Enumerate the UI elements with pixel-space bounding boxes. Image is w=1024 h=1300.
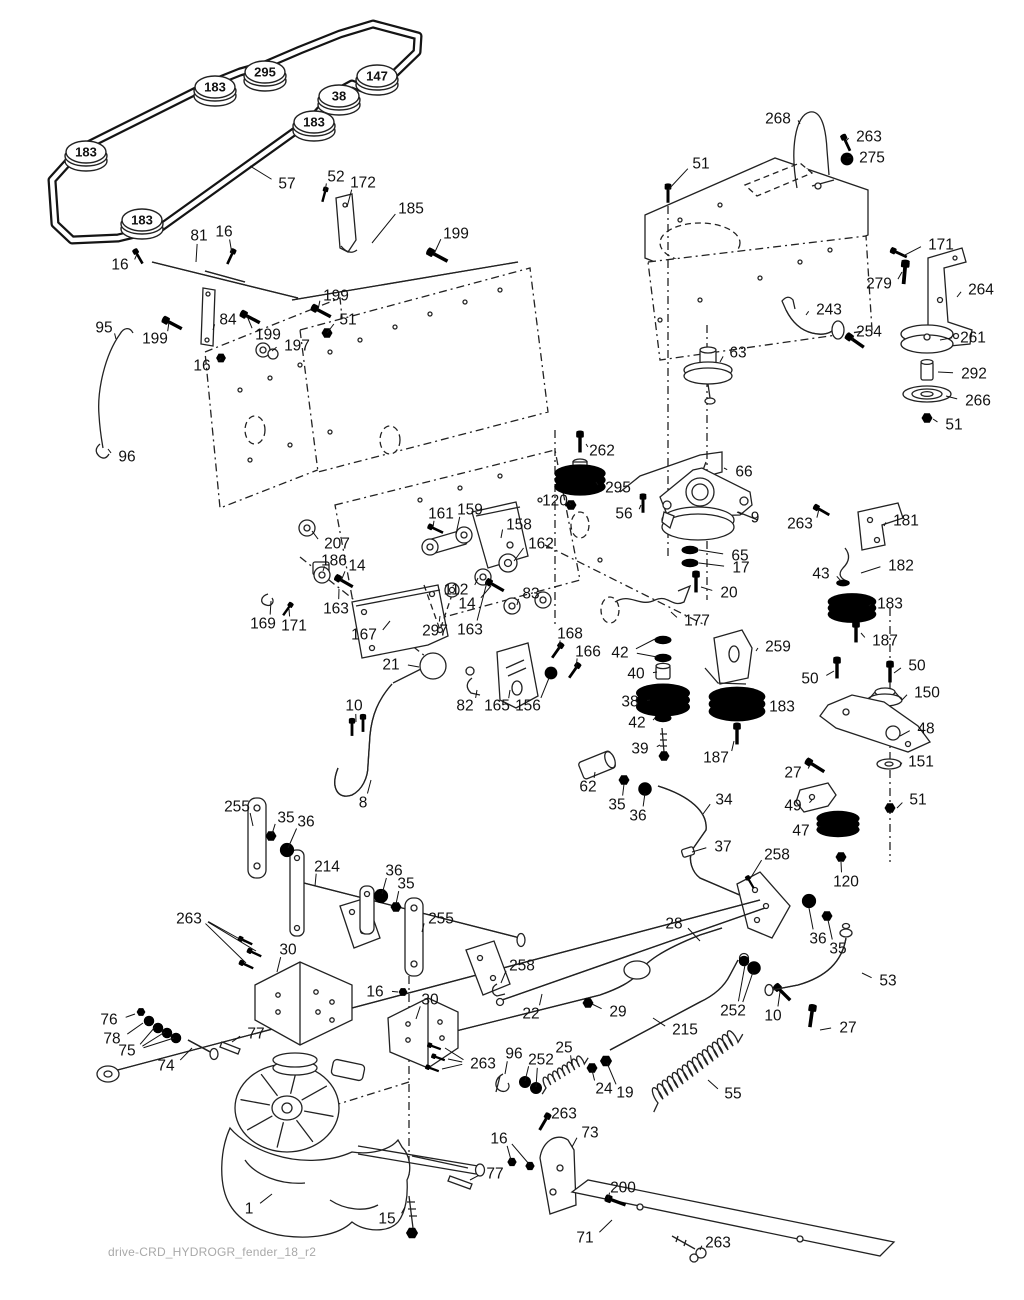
leader-line (852, 336, 854, 341)
leader-line (692, 848, 706, 852)
leader-line (517, 599, 519, 605)
part-labels: 5752172185199811616199845119919716951999… (95, 111, 994, 1252)
part-label-183: 183 (877, 596, 903, 613)
leader-line (196, 244, 197, 262)
leader-line (260, 1194, 272, 1203)
part-label-53: 53 (879, 973, 896, 990)
part-label-255: 255 (224, 799, 250, 816)
leader-line (837, 576, 841, 581)
part-label-197: 197 (284, 338, 310, 355)
belt-pulley-label-147: 147 (356, 65, 398, 95)
part-label-95: 95 (95, 320, 112, 337)
part-label-182: 182 (888, 558, 914, 575)
leader-line (657, 745, 660, 747)
leader-lines (108, 120, 961, 1250)
leader-line (439, 616, 440, 622)
part-label-77: 77 (247, 1026, 264, 1043)
leader-line (720, 356, 723, 362)
part-label-35: 35 (829, 941, 846, 958)
leader-line (903, 247, 921, 256)
belt-label-text: 183 (75, 145, 97, 160)
leader-line (341, 571, 345, 581)
part-label-263: 263 (551, 1106, 577, 1123)
part-label-158: 158 (506, 517, 532, 534)
leader-line (933, 419, 937, 422)
part-label-28: 28 (665, 916, 682, 933)
leader-line (592, 1004, 602, 1009)
part-label-16: 16 (215, 224, 232, 241)
leader-line (668, 169, 688, 190)
leader-line (586, 444, 588, 447)
leader-line (372, 214, 395, 243)
leader-line (653, 718, 655, 720)
part-label-8: 8 (359, 795, 368, 812)
leader-line (946, 396, 957, 399)
leader-line (884, 522, 886, 526)
part-label-9: 9 (751, 510, 760, 527)
part-label-75: 75 (118, 1043, 135, 1060)
leader-line (312, 531, 318, 539)
leader-line (847, 157, 851, 158)
part-label-151: 151 (908, 754, 934, 771)
part-label-165: 165 (484, 698, 510, 715)
part-label-163: 163 (323, 601, 349, 618)
leader-line (250, 813, 253, 826)
part-label-187: 187 (872, 633, 898, 650)
part-label-71: 71 (576, 1230, 593, 1247)
part-label-1: 1 (245, 1201, 254, 1218)
part-label-199: 199 (142, 331, 168, 348)
leader-line (507, 1146, 511, 1160)
leader-line (501, 530, 503, 538)
part-label-15: 15 (378, 1211, 395, 1228)
leader-line (540, 994, 542, 1005)
part-label-263: 263 (856, 129, 882, 146)
leader-line (140, 1027, 155, 1044)
leader-line (571, 1055, 572, 1066)
leader-line (701, 587, 712, 590)
leader-line (347, 190, 352, 207)
leader-line (897, 803, 902, 808)
part-label-120: 120 (542, 493, 568, 510)
leader-line (218, 358, 221, 362)
part-label-181: 181 (893, 513, 919, 530)
leader-line (688, 928, 700, 941)
leader-line (818, 826, 820, 828)
part-label-39: 39 (631, 741, 648, 758)
part-label-21: 21 (382, 657, 399, 674)
leader-line (126, 1014, 135, 1017)
leader-line (270, 601, 271, 615)
belt-label-text: 183 (204, 80, 226, 95)
leader-line (594, 772, 595, 778)
part-label-268: 268 (765, 111, 791, 128)
part-label-200: 200 (610, 1180, 636, 1197)
leader-line (445, 1048, 463, 1060)
leader-line (820, 1028, 831, 1030)
part-label-169: 169 (250, 616, 276, 633)
part-label-84: 84 (219, 312, 237, 329)
part-label-74: 74 (157, 1058, 175, 1075)
leader-line (408, 665, 419, 667)
part-label-36: 36 (809, 931, 826, 948)
leader-line (541, 678, 549, 698)
part-label-168: 168 (557, 626, 583, 643)
belt-label-text: 38 (332, 89, 346, 104)
leader-line (828, 920, 832, 940)
part-label-38: 38 (621, 694, 638, 711)
leader-line (809, 800, 812, 803)
leader-line (653, 672, 657, 673)
part-label-258: 258 (764, 847, 790, 864)
belt-pulley-label-183: 183 (65, 141, 107, 171)
part-label-81: 81 (190, 228, 207, 245)
leader-line (572, 1138, 577, 1147)
part-label-295: 295 (605, 480, 631, 497)
part-label-161: 161 (428, 506, 454, 523)
belt-pulley-label-183: 183 (293, 111, 335, 141)
leader-line (845, 138, 849, 142)
leader-line (416, 1006, 420, 1019)
part-label-10: 10 (345, 698, 363, 715)
leader-line (861, 567, 880, 573)
leader-line (636, 639, 655, 649)
leader-line (247, 316, 252, 328)
part-label-207: 207 (324, 536, 350, 553)
leader-line (806, 311, 809, 315)
part-label-27: 27 (784, 765, 801, 782)
leader-line (738, 965, 745, 1001)
part-label-73: 73 (581, 1125, 598, 1142)
part-label-186: 186 (321, 553, 347, 570)
leader-line (277, 957, 281, 972)
leader-line (289, 609, 290, 616)
leader-line (708, 1080, 718, 1089)
leader-line (869, 604, 871, 606)
leader-line (367, 780, 371, 794)
belt-label-text: 183 (303, 115, 325, 130)
part-label-63: 63 (729, 345, 746, 362)
leader-line (250, 166, 272, 179)
part-label-259: 259 (765, 639, 791, 656)
part-label-292: 292 (961, 366, 987, 383)
leader-line (546, 1117, 548, 1121)
part-label-77: 77 (486, 1166, 503, 1183)
labels-overlay: 1832951473818318318357521721851998116161… (0, 0, 1024, 1300)
leader-line (382, 878, 386, 894)
part-label-24: 24 (595, 1081, 613, 1098)
leader-line (180, 1048, 192, 1060)
leader-line (232, 1036, 240, 1042)
part-label-255: 255 (428, 911, 454, 928)
part-label-55: 55 (724, 1086, 741, 1103)
part-label-156: 156 (515, 698, 541, 715)
part-label-20: 20 (720, 585, 738, 602)
leader-line (798, 120, 800, 124)
leader-line (392, 991, 398, 992)
leader-line (940, 338, 952, 340)
leader-line (434, 239, 441, 254)
leader-line (637, 653, 657, 657)
leader-line (569, 503, 571, 505)
leader-line (808, 765, 810, 769)
part-label-52: 52 (327, 169, 344, 186)
part-label-275: 275 (859, 150, 885, 167)
leader-line (592, 1070, 595, 1081)
part-label-50: 50 (801, 671, 819, 688)
leader-line (135, 254, 137, 259)
part-label-14: 14 (458, 596, 476, 613)
part-label-14: 14 (348, 558, 366, 575)
part-label-34: 34 (715, 792, 733, 809)
part-label-96: 96 (118, 449, 135, 466)
part-label-263: 263 (176, 911, 202, 928)
part-label-19: 19 (616, 1085, 633, 1102)
belt-pulley-label-295: 295 (244, 61, 286, 91)
leader-line (230, 240, 232, 254)
part-label-10: 10 (764, 1008, 782, 1025)
part-label-51: 51 (909, 792, 926, 809)
leader-line (900, 763, 902, 765)
leader-line (894, 668, 901, 673)
part-label-35: 35 (397, 876, 414, 893)
leader-line (208, 922, 256, 951)
part-label-42: 42 (611, 645, 628, 662)
part-label-47: 47 (792, 823, 809, 840)
part-label-185: 185 (398, 201, 424, 218)
leader-line (501, 971, 506, 983)
part-label-36: 36 (297, 814, 314, 831)
leader-line (623, 784, 624, 796)
leader-line (862, 973, 872, 978)
part-label-252: 252 (528, 1052, 554, 1069)
leader-line (898, 272, 902, 279)
part-label-297: 297 (422, 623, 448, 640)
leader-line (325, 183, 326, 192)
leader-line (327, 324, 334, 333)
leader-line (477, 582, 487, 621)
leader-line (750, 860, 762, 879)
leader-line (318, 301, 320, 310)
leader-line (396, 891, 399, 904)
part-label-163: 163 (457, 622, 483, 639)
part-label-264: 264 (968, 282, 994, 299)
part-label-83: 83 (522, 586, 539, 603)
leader-line (383, 621, 390, 630)
belt-pulley-label-183: 183 (194, 76, 236, 106)
leader-line (861, 633, 865, 637)
part-label-214: 214 (314, 859, 340, 876)
part-label-254: 254 (856, 324, 882, 341)
leader-line (213, 324, 215, 330)
leader-line (205, 924, 246, 963)
leader-line (288, 828, 297, 848)
part-label-30: 30 (279, 942, 297, 959)
leader-line (826, 671, 834, 675)
part-label-263: 263 (470, 1056, 496, 1073)
belt-pulley-label-183: 183 (121, 209, 163, 239)
part-label-199: 199 (323, 288, 349, 305)
part-label-16: 16 (490, 1131, 507, 1148)
leader-line (639, 505, 641, 509)
leader-line (272, 347, 277, 351)
part-label-16: 16 (111, 257, 128, 274)
leader-line (778, 992, 780, 1006)
leader-line (671, 612, 677, 617)
belt-label-text: 183 (131, 213, 153, 228)
part-label-96: 96 (505, 1046, 522, 1063)
part-label-150: 150 (914, 685, 940, 702)
leader-line (475, 578, 478, 585)
part-label-29: 29 (609, 1004, 626, 1021)
part-label-187: 187 (703, 750, 729, 767)
belt-label-text: 147 (366, 69, 388, 84)
part-label-199: 199 (443, 226, 469, 243)
part-label-51: 51 (339, 312, 356, 329)
leader-line (272, 824, 275, 834)
leader-line (422, 923, 424, 932)
part-label-49: 49 (784, 798, 801, 815)
leader-line (456, 517, 460, 534)
part-label-22: 22 (522, 1006, 539, 1023)
part-label-42: 42 (628, 715, 645, 732)
leader-line (938, 372, 953, 373)
leader-line (703, 804, 710, 814)
part-label-36: 36 (629, 808, 646, 825)
part-label-215: 215 (672, 1022, 698, 1039)
leader-line (315, 874, 316, 886)
part-label-51: 51 (692, 156, 709, 173)
part-label-177: 177 (684, 613, 710, 630)
part-label-172: 172 (350, 175, 376, 192)
leader-line (505, 1061, 507, 1074)
leader-line (900, 731, 910, 736)
leader-line (756, 648, 758, 651)
leader-line (643, 793, 645, 806)
part-label-35: 35 (608, 797, 625, 814)
part-label-35: 35 (277, 810, 294, 827)
leader-line (902, 695, 907, 700)
leader-line (841, 862, 842, 872)
leader-line (809, 908, 813, 929)
leader-line (817, 509, 819, 518)
part-label-76: 76 (100, 1012, 117, 1029)
part-label-56: 56 (615, 506, 632, 523)
part-label-263: 263 (787, 516, 813, 533)
part-label-262: 262 (589, 443, 615, 460)
part-label-50: 50 (908, 658, 926, 675)
part-label-43: 43 (812, 566, 829, 583)
leader-line (732, 741, 734, 751)
leader-line (476, 690, 477, 698)
leader-line (402, 1207, 405, 1213)
part-label-40: 40 (627, 666, 645, 683)
part-label-263: 263 (705, 1235, 731, 1252)
part-label-261: 261 (960, 330, 986, 347)
part-label-37: 37 (714, 839, 731, 856)
part-label-62: 62 (579, 779, 596, 796)
leader-line (470, 1175, 479, 1180)
leader-line (700, 1246, 702, 1250)
part-label-279: 279 (866, 276, 892, 293)
part-label-258: 258 (509, 958, 535, 975)
belt-label-text: 295 (254, 65, 276, 80)
part-label-16: 16 (366, 984, 383, 1001)
part-label-57: 57 (278, 176, 295, 193)
part-label-167: 167 (351, 627, 377, 644)
parts-diagram-page: 1832951473818318318357521721851998116161… (0, 0, 1024, 1300)
part-label-82: 82 (456, 698, 473, 715)
part-label-48: 48 (917, 721, 934, 738)
belt-pulley-label-38: 38 (318, 85, 360, 115)
part-label-183: 183 (769, 699, 795, 716)
part-label-16: 16 (193, 358, 210, 375)
leader-line (647, 700, 650, 701)
leader-line (127, 1023, 143, 1034)
part-label-252: 252 (720, 1003, 746, 1020)
part-label-17: 17 (732, 560, 749, 577)
part-label-162: 162 (528, 536, 554, 553)
leader-line (699, 550, 723, 554)
part-label-30: 30 (421, 992, 439, 1009)
leader-line (653, 1018, 665, 1026)
leader-line (448, 1059, 462, 1062)
leader-line (737, 512, 742, 515)
part-label-66: 66 (735, 464, 752, 481)
leader-line (599, 1220, 612, 1232)
part-label-266: 266 (965, 393, 991, 410)
leader-line (512, 1144, 529, 1164)
leader-line (514, 548, 524, 561)
drawing-id: drive-CRD_HYDROGR_fender_18_r2 (108, 1245, 316, 1259)
leader-line (536, 1068, 537, 1087)
part-label-51: 51 (945, 417, 962, 434)
leader-line (596, 482, 598, 485)
part-label-199: 199 (255, 327, 281, 344)
leader-line (957, 292, 961, 297)
part-label-25: 25 (555, 1040, 572, 1057)
part-label-166: 166 (575, 644, 601, 661)
leader-line (724, 468, 727, 470)
leader-line (763, 705, 765, 706)
leader-line (699, 563, 724, 566)
leader-line (743, 972, 753, 1002)
part-label-159: 159 (457, 502, 483, 519)
part-label-243: 243 (816, 302, 842, 319)
leader-line (442, 1064, 462, 1069)
part-label-27: 27 (839, 1020, 856, 1037)
part-label-171: 171 (281, 618, 307, 635)
leader-line (108, 449, 111, 453)
part-label-120: 120 (833, 874, 859, 891)
part-label-171: 171 (928, 237, 954, 254)
belt-pulley-labels: 18329514738183183183 (65, 61, 398, 239)
leader-line (115, 333, 116, 339)
